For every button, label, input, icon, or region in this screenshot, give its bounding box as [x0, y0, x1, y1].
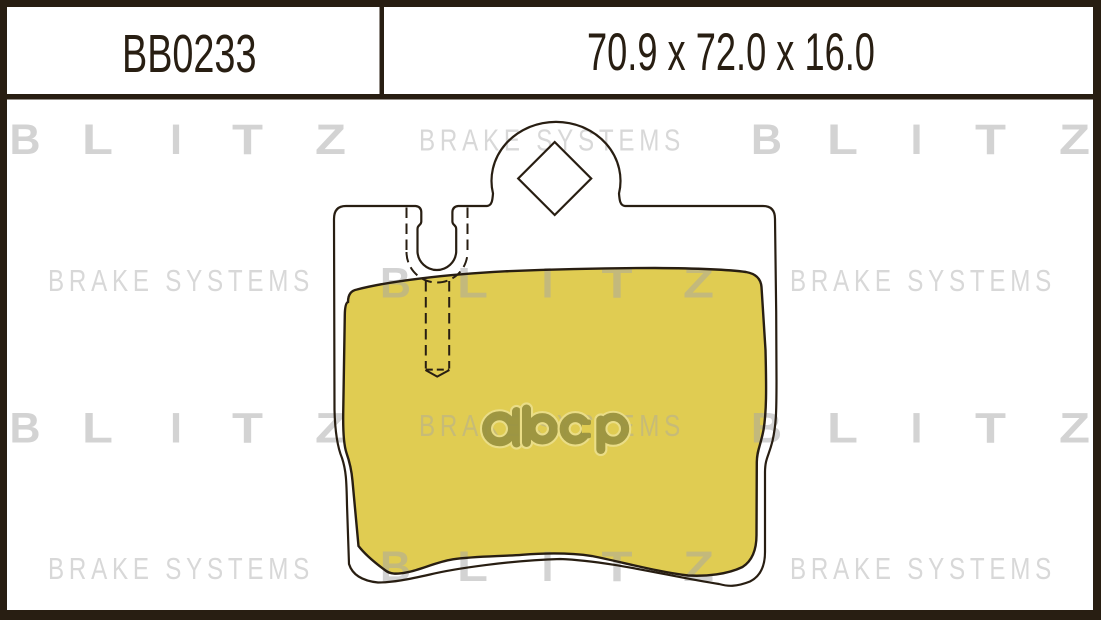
svg-text:I: I [170, 116, 182, 164]
svg-text:L: L [82, 405, 113, 453]
svg-text:B: B [10, 405, 41, 453]
svg-text:Z: Z [315, 116, 346, 164]
svg-text:I: I [170, 405, 182, 453]
svg-text:L: L [82, 116, 113, 164]
svg-text:T: T [975, 405, 1006, 453]
svg-text:B: B [751, 116, 782, 164]
svg-text:Z: Z [1059, 116, 1090, 164]
svg-text:T: T [232, 116, 263, 164]
svg-text:I: I [911, 116, 923, 164]
svg-text:Z: Z [683, 543, 714, 591]
svg-text:Z: Z [683, 260, 714, 308]
svg-text:I: I [542, 543, 554, 591]
svg-text:Z: Z [1059, 405, 1090, 453]
svg-text:T: T [232, 405, 263, 453]
svg-text:L: L [827, 405, 858, 453]
svg-text:I: I [911, 405, 923, 453]
svg-text:Z: Z [315, 405, 346, 453]
svg-text:L: L [827, 116, 858, 164]
svg-text:T: T [602, 260, 633, 308]
svg-text:BB0233: BB0233 [122, 23, 256, 83]
svg-text:L: L [457, 260, 488, 308]
svg-text:70.9 x 72.0 x 16.0: 70.9 x 72.0 x 16.0 [587, 22, 875, 81]
svg-text:B: B [380, 543, 411, 591]
svg-text:I: I [542, 260, 554, 308]
svg-text:B: B [10, 116, 41, 164]
svg-text:T: T [975, 116, 1006, 164]
svg-text:B: B [751, 405, 782, 453]
